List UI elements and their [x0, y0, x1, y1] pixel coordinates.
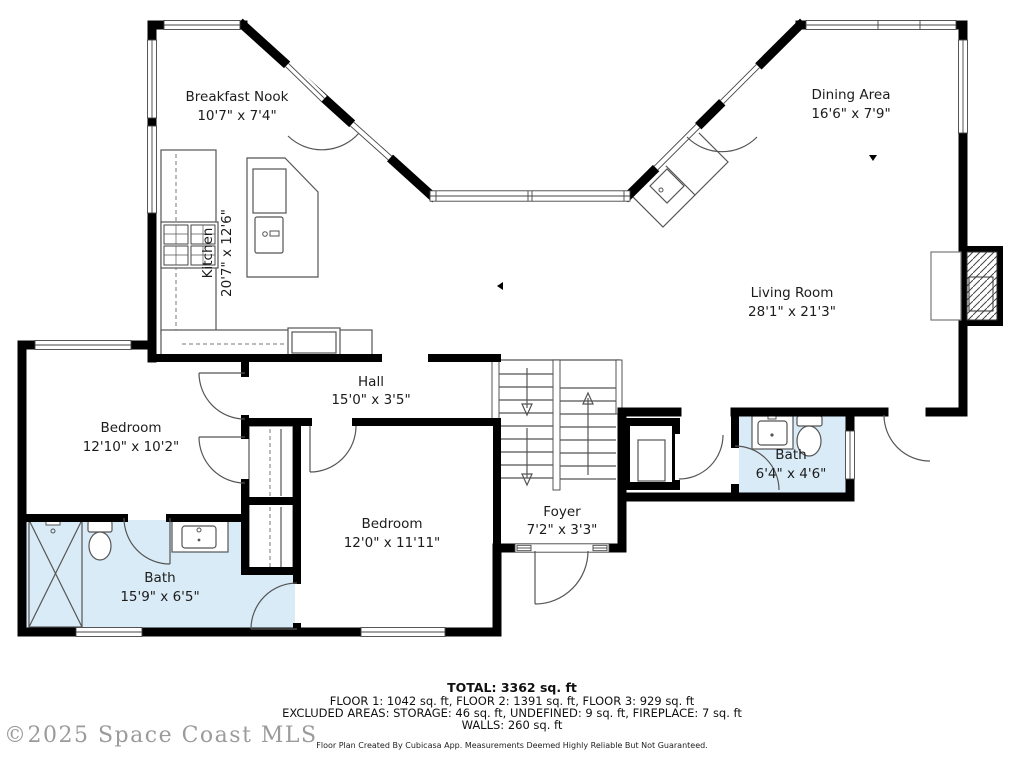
- svg-text:Bedroom: Bedroom: [361, 516, 422, 532]
- bay-window-band: [430, 191, 630, 201]
- svg-text:Bath: Bath: [775, 447, 806, 463]
- living-room-door-arc: [884, 415, 930, 461]
- room-label-foyer: Foyer 7'2" x 3'3": [527, 504, 598, 538]
- svg-text:15'0" x 3'5": 15'0" x 3'5": [331, 392, 410, 408]
- dining-right-window: [959, 40, 968, 133]
- staircase: [492, 360, 622, 490]
- nook-top-window: [164, 21, 240, 30]
- bedroom-left-window: [35, 341, 131, 350]
- storage-door-arc: [679, 435, 723, 479]
- bath-small-window: [846, 431, 855, 479]
- sink-vanity-small: [752, 414, 793, 449]
- room-label-bedroom-left: Bedroom 12'10" x 10'2": [83, 420, 180, 455]
- bedroom-left-door-lower: [199, 437, 245, 483]
- storage-shelf: [638, 440, 665, 481]
- room-label-living-room: Living Room 28'1" x 21'3": [748, 285, 836, 320]
- svg-text:12'10" x 10'2": 12'10" x 10'2": [83, 439, 180, 455]
- svg-text:Foyer: Foyer: [543, 504, 581, 520]
- svg-text:6'4" x 4'6": 6'4" x 4'6": [756, 466, 827, 482]
- front-door: [515, 544, 609, 604]
- mls-watermark: ©2025 Space Coast MLS: [4, 723, 318, 748]
- credit-line: Floor Plan Created By Cubicasa App. Meas…: [316, 741, 708, 750]
- svg-text:Breakfast Nook: Breakfast Nook: [186, 89, 289, 105]
- stair-up-arrow: [583, 393, 593, 475]
- total-area: TOTAL: 3362 sq. ft: [447, 680, 577, 695]
- area-summary: TOTAL: 3362 sq. ft FLOOR 1: 1042 sq. ft,…: [282, 680, 742, 750]
- bath-large-window: [76, 628, 142, 637]
- room-label-dining-area: Dining Area 16'6" x 7'9": [811, 87, 890, 122]
- svg-text:Hall: Hall: [358, 374, 384, 390]
- stair-treads-left: [499, 374, 553, 478]
- island-sink: [255, 217, 283, 253]
- svg-text:20'7" x 12'6": 20'7" x 12'6": [219, 209, 235, 297]
- svg-text:16'6" x 7'9": 16'6" x 7'9": [811, 106, 890, 122]
- svg-text:Living Room: Living Room: [751, 285, 834, 301]
- fireplace: [931, 246, 1003, 326]
- bedroom-lower-window: [361, 628, 445, 637]
- bedroom-left-door-upper: [199, 373, 245, 419]
- svg-text:15'9" x 6'5": 15'9" x 6'5": [120, 589, 199, 605]
- floor-plan-page: Breakfast Nook 10'7" x 7'4" Dining Area …: [0, 0, 1024, 768]
- nook-left-windows: [148, 40, 157, 213]
- kitchen-fixtures: [161, 150, 372, 357]
- svg-text:Kitchen: Kitchen: [200, 228, 216, 279]
- svg-text:Bath: Bath: [144, 570, 175, 586]
- svg-text:Dining Area: Dining Area: [812, 87, 891, 103]
- room-label-bedroom-lower: Bedroom 12'0" x 11'11": [344, 516, 441, 551]
- nook-patio-door-arc: [288, 133, 359, 150]
- floor-plan: Breakfast Nook 10'7" x 7'4" Dining Area …: [0, 0, 1024, 768]
- sink-vanity: [172, 521, 228, 552]
- svg-text:28'1" x 21'3": 28'1" x 21'3": [748, 304, 836, 320]
- wall-areas: WALLS: 260 sq. ft: [462, 718, 563, 732]
- room-label-hall: Hall 15'0" x 3'5": [331, 374, 410, 408]
- toilet: [88, 521, 112, 560]
- svg-text:12'0" x 11'11": 12'0" x 11'11": [344, 535, 441, 551]
- kitchen-island: [247, 158, 318, 277]
- svg-text:10'7" x 7'4": 10'7" x 7'4": [197, 108, 276, 124]
- room-label-breakfast-nook: Breakfast Nook 10'7" x 7'4": [186, 89, 289, 124]
- svg-text:Bedroom: Bedroom: [100, 420, 161, 436]
- svg-text:7'2" x 3'3": 7'2" x 3'3": [527, 522, 598, 538]
- bedroom-lower-door: [310, 426, 356, 472]
- dining-top-window: [806, 21, 956, 30]
- fireplace-hearth: [931, 252, 961, 320]
